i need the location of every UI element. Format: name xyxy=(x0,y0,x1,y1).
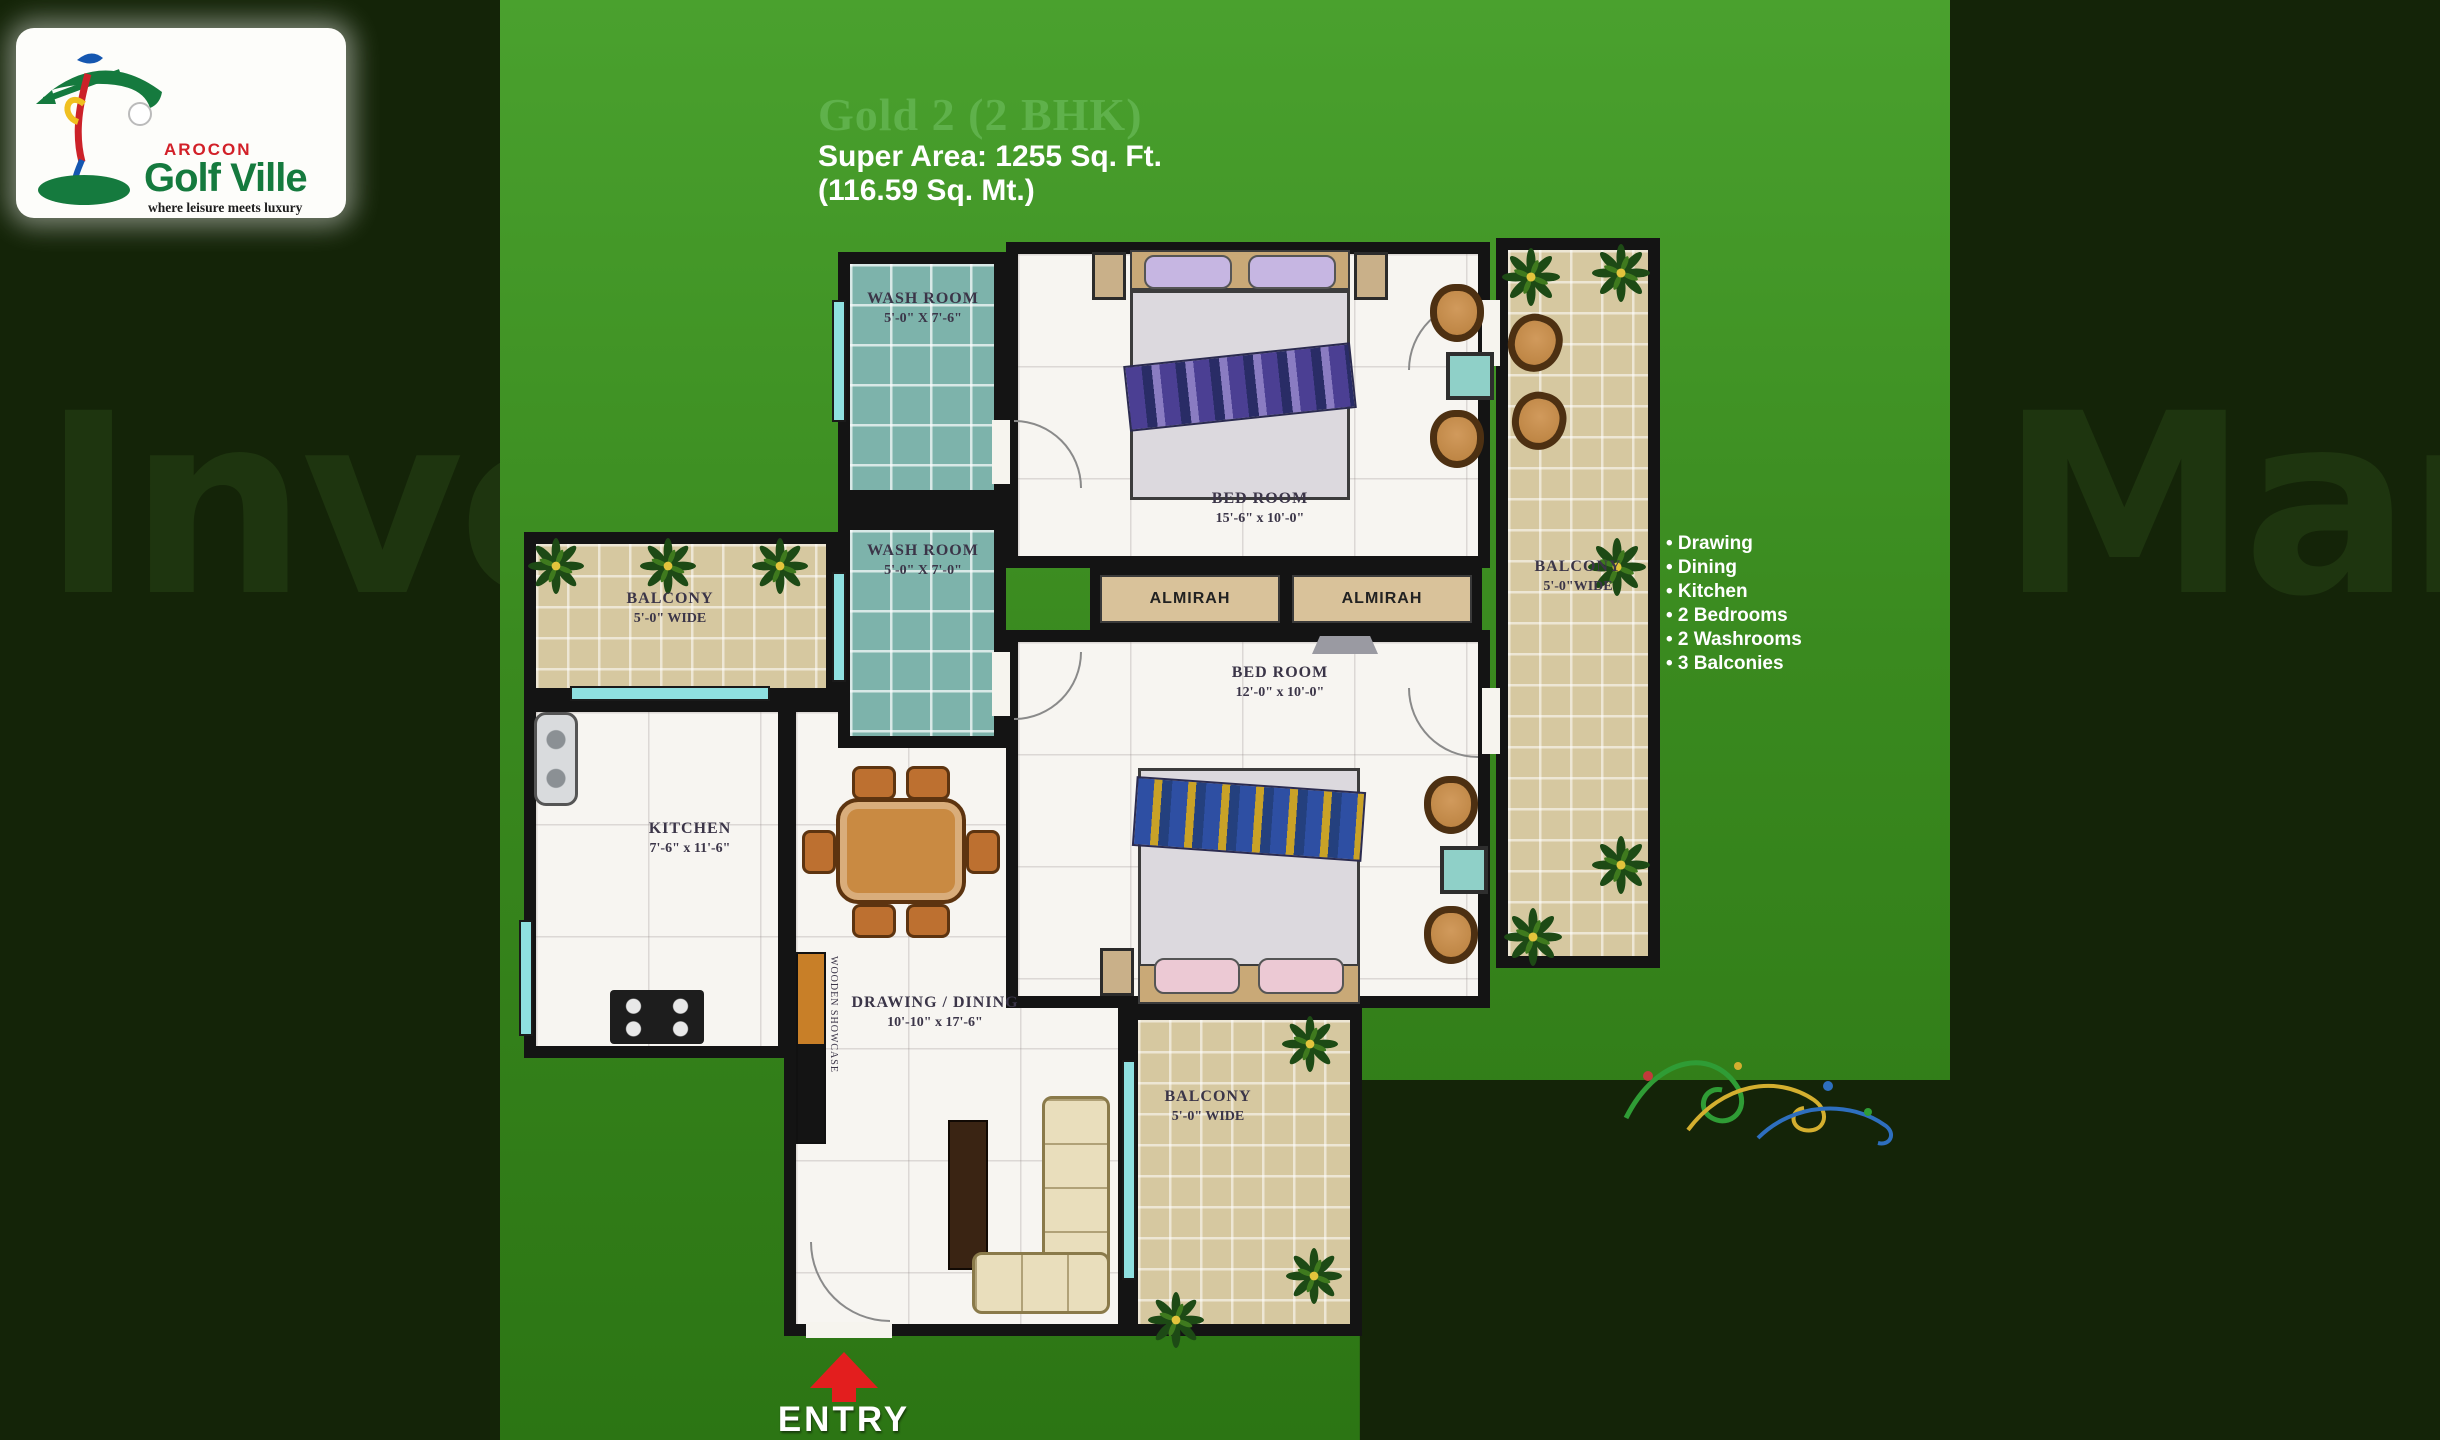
armchair xyxy=(1430,410,1484,468)
plant-icon xyxy=(1282,1016,1338,1072)
dining-table xyxy=(836,798,966,904)
feature-item: • 2 Bedrooms xyxy=(1666,604,1802,628)
label-drawing-dining: DRAWING / DINING 10'-10" x 17'-6" xyxy=(800,992,1070,1032)
logo-name-text: Golf Ville xyxy=(144,156,307,201)
room-name: BED ROOM xyxy=(1170,488,1350,510)
room-dims: 5'-0" X 7'-6" xyxy=(848,310,998,329)
plant-icon xyxy=(528,538,584,594)
logo-card: AROCON Golf Ville where leisure meets lu… xyxy=(16,28,346,218)
plant-icon xyxy=(1148,1292,1204,1348)
room-dims: 10'-10" x 17'-6" xyxy=(800,1014,1070,1033)
plant-icon xyxy=(1592,836,1650,894)
features-list: • Drawing • Dining • Kitchen • 2 Bedroom… xyxy=(1666,532,1802,676)
decorative-flourish-icon xyxy=(1618,1026,1918,1156)
nightstand xyxy=(1092,252,1126,300)
entry-arrow-icon xyxy=(810,1352,878,1402)
label-kitchen: KITCHEN 7'-6" x 11'-6" xyxy=(600,818,780,858)
window xyxy=(832,572,846,682)
dining-chair xyxy=(802,830,836,874)
label-balcony-right: BALCONY 5'-0"WIDE xyxy=(1506,556,1650,596)
feature-item: • 3 Balconies xyxy=(1666,652,1802,676)
label-bedroom-top: BED ROOM 15'-6" x 10'-0" xyxy=(1170,488,1350,528)
tv-unit xyxy=(948,1120,988,1270)
tv-stand-icon xyxy=(1312,636,1378,654)
plant-icon xyxy=(1592,244,1650,302)
almirah-left: ALMIRAH xyxy=(1100,575,1280,623)
side-table xyxy=(1446,352,1494,400)
armchair xyxy=(1424,776,1478,834)
window xyxy=(570,686,770,701)
room-name: BALCONY xyxy=(590,588,750,610)
sofa xyxy=(1042,1096,1110,1272)
plant-icon xyxy=(640,538,696,594)
dining-chair xyxy=(852,904,896,938)
feature-item: • Dining xyxy=(1666,556,1802,580)
label-bedroom-middle: BED ROOM 12'-0" x 10'-0" xyxy=(1190,662,1370,702)
nightstand xyxy=(1354,252,1388,300)
stove-icon xyxy=(610,990,704,1044)
label-washroom-top: WASH ROOM 5'-0" X 7'-6" xyxy=(848,288,998,328)
room-name: DRAWING / DINING xyxy=(800,992,1070,1014)
room-name: BALCONY xyxy=(1506,556,1650,578)
label-balcony-left: BALCONY 5'-0" WIDE xyxy=(590,588,750,628)
plant-icon xyxy=(752,538,808,594)
armchair xyxy=(1424,906,1478,964)
wooden-showcase xyxy=(796,952,826,1144)
almirah-right: ALMIRAH xyxy=(1292,575,1472,623)
window xyxy=(1122,1060,1136,1280)
dining-chair xyxy=(906,766,950,800)
dining-chair xyxy=(852,766,896,800)
feature-item: • 2 Washrooms xyxy=(1666,628,1802,652)
nightstand xyxy=(1100,948,1134,996)
dining-chair xyxy=(966,830,1000,874)
dining-chair xyxy=(906,904,950,938)
room-name: BALCONY xyxy=(1138,1086,1278,1108)
label-washroom-bottom: WASH ROOM 5'-0" X 7'-0" xyxy=(848,540,998,580)
window xyxy=(519,920,533,1036)
room-dims: 15'-6" x 10'-0" xyxy=(1170,510,1350,529)
logo-tagline: where leisure meets luxury xyxy=(148,200,302,216)
room-name: WASH ROOM xyxy=(848,288,998,310)
room-dims: 5'-0" X 7'-0" xyxy=(848,562,998,581)
kitchen-sink-icon xyxy=(534,712,578,806)
plan-title: Gold 2 (2 BHK) xyxy=(818,88,1143,141)
sofa xyxy=(972,1252,1110,1314)
metric-area-text: (116.59 Sq. Mt.) xyxy=(818,174,1035,208)
side-table xyxy=(1440,846,1488,894)
plant-icon xyxy=(1286,1248,1342,1304)
door-opening xyxy=(992,420,1010,484)
room-name: BED ROOM xyxy=(1190,662,1370,684)
door-opening xyxy=(1482,688,1500,754)
entry-opening xyxy=(806,1322,892,1338)
room-name: WASH ROOM xyxy=(848,540,998,562)
room-dims: 7'-6" x 11'-6" xyxy=(600,840,780,859)
door-opening xyxy=(992,652,1010,716)
label-balcony-bottom: BALCONY 5'-0" WIDE xyxy=(1138,1086,1278,1126)
double-bed-top xyxy=(1130,250,1350,500)
double-bed-middle xyxy=(1138,768,1360,1004)
almirah-band: ALMIRAH ALMIRAH xyxy=(1090,566,1482,632)
armchair xyxy=(1430,284,1484,342)
super-area-text: Super Area: 1255 Sq. Ft. xyxy=(818,140,1162,174)
plant-icon xyxy=(1502,248,1560,306)
plant-icon xyxy=(1504,908,1562,966)
room-name: KITCHEN xyxy=(600,818,780,840)
room-dims: 12'-0" x 10'-0" xyxy=(1190,684,1370,703)
brochure-page: Inve Mart AROCON Golf Ville where leisur… xyxy=(0,0,2440,1440)
entry-label: ENTRY xyxy=(758,1400,930,1440)
room-dims: 5'-0" WIDE xyxy=(590,610,750,629)
room-dims: 5'-0" WIDE xyxy=(1138,1108,1278,1127)
window xyxy=(832,300,846,422)
feature-item: • Drawing xyxy=(1666,532,1802,556)
room-dims: 5'-0"WIDE xyxy=(1506,578,1650,597)
watermark-right: Mart xyxy=(2000,360,2440,651)
feature-item: • Kitchen xyxy=(1666,580,1802,604)
